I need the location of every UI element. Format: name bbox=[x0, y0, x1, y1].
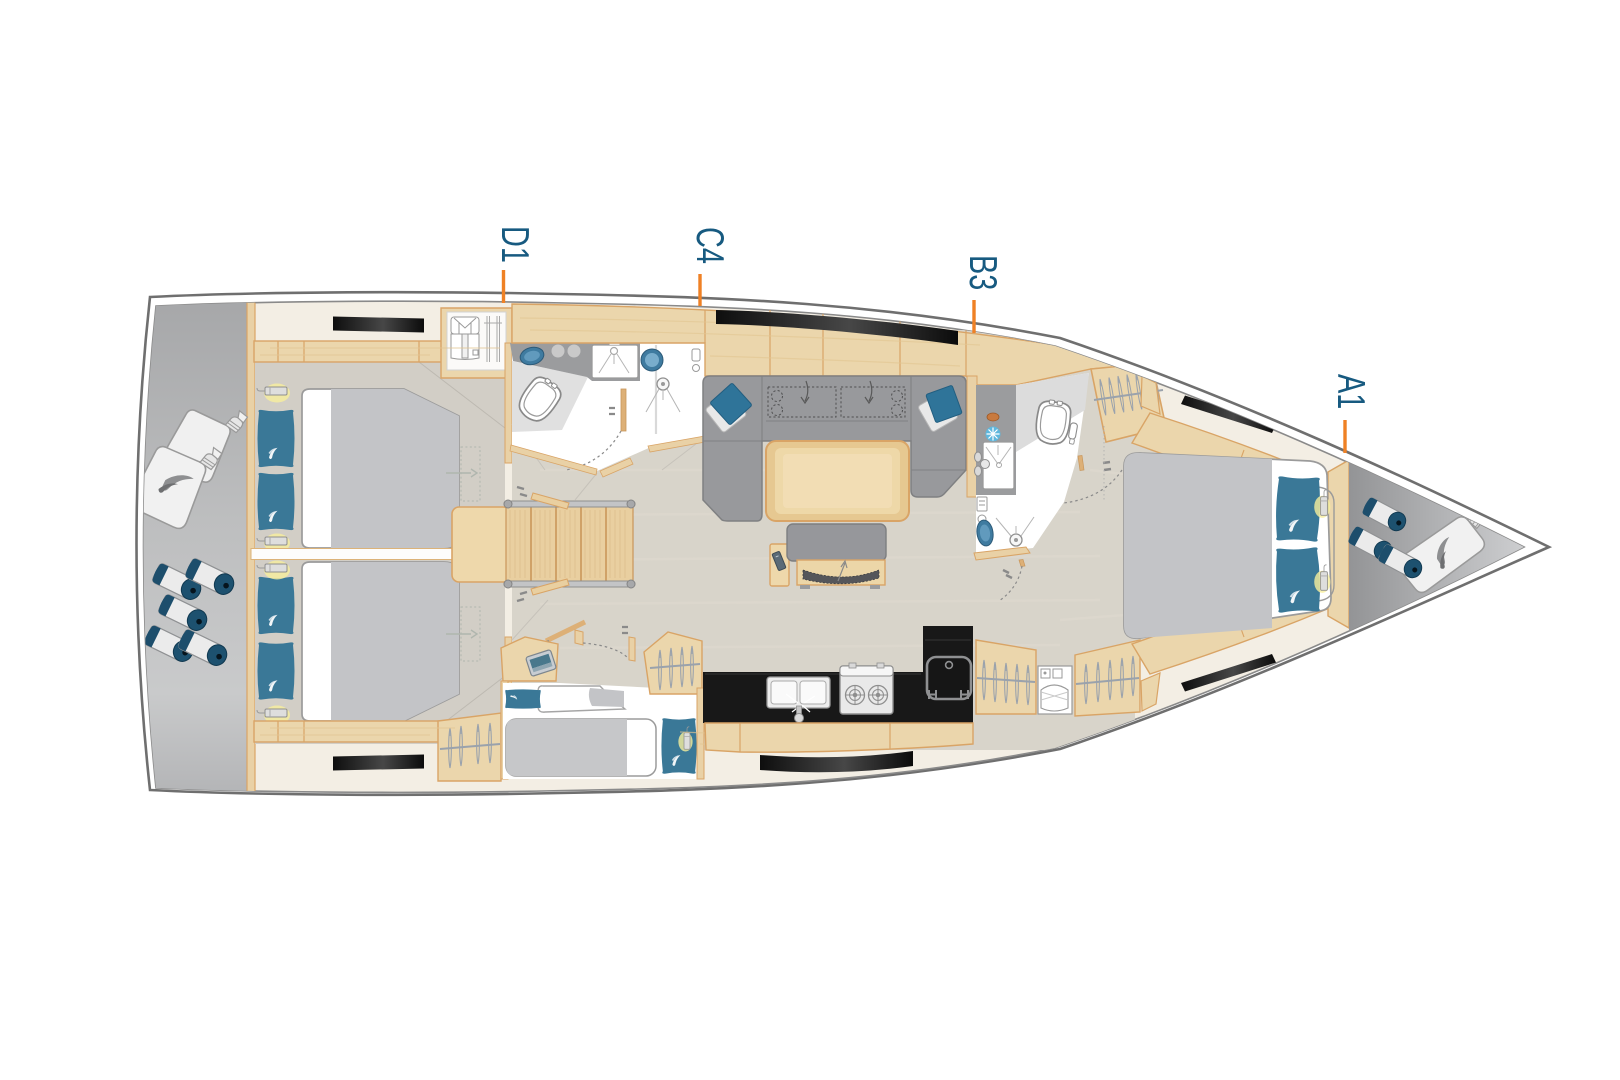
svg-text:C4: C4 bbox=[688, 227, 731, 264]
svg-text:A1: A1 bbox=[1329, 374, 1372, 409]
svg-text:B3: B3 bbox=[961, 255, 1004, 290]
svg-text:D1: D1 bbox=[493, 226, 536, 263]
